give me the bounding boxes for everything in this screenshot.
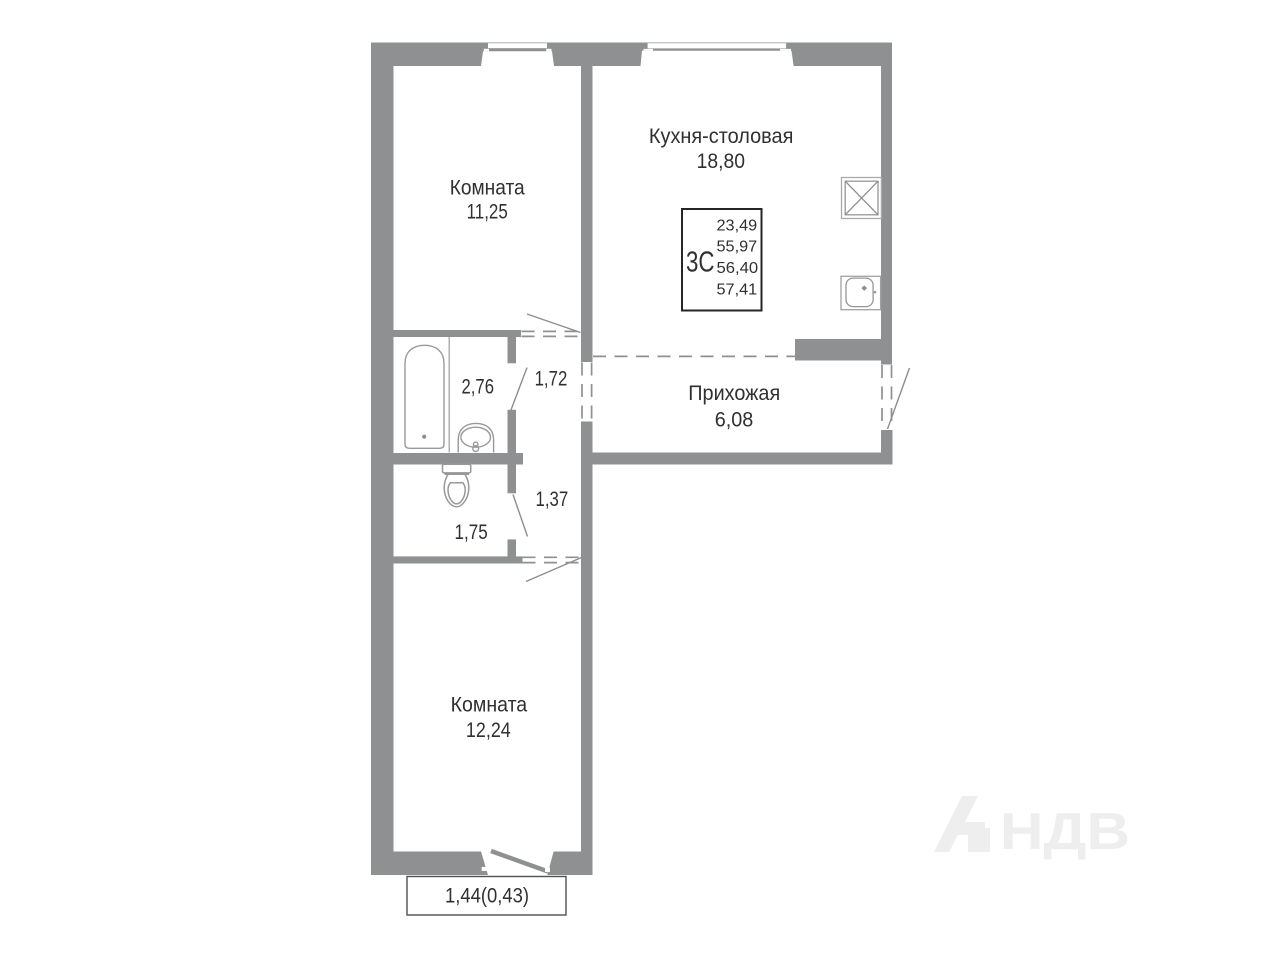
svg-text:1,75: 1,75 bbox=[455, 520, 488, 544]
svg-text:6,08: 6,08 bbox=[715, 408, 754, 432]
svg-text:18,80: 18,80 bbox=[697, 149, 745, 173]
svg-text:3С: 3С bbox=[686, 246, 715, 278]
svg-text:1,37: 1,37 bbox=[536, 487, 569, 511]
svg-text:Кухня-столовая: Кухня-столовая bbox=[649, 124, 794, 148]
svg-text:НДВ: НДВ bbox=[1000, 803, 1130, 861]
svg-text:57,41: 57,41 bbox=[717, 282, 758, 299]
svg-text:Прихожая: Прихожая bbox=[688, 381, 780, 405]
svg-text:11,25: 11,25 bbox=[467, 200, 508, 224]
svg-text:Комната: Комната bbox=[451, 693, 528, 717]
svg-text:56,40: 56,40 bbox=[717, 260, 759, 277]
svg-text:12,24: 12,24 bbox=[466, 718, 511, 742]
svg-text:Комната: Комната bbox=[450, 176, 525, 200]
svg-text:2,76: 2,76 bbox=[462, 375, 495, 399]
svg-text:1,44(0,43): 1,44(0,43) bbox=[445, 885, 529, 908]
svg-text:1,72: 1,72 bbox=[535, 367, 568, 391]
svg-text:55,97: 55,97 bbox=[717, 239, 758, 256]
svg-text:23,49: 23,49 bbox=[717, 217, 758, 234]
